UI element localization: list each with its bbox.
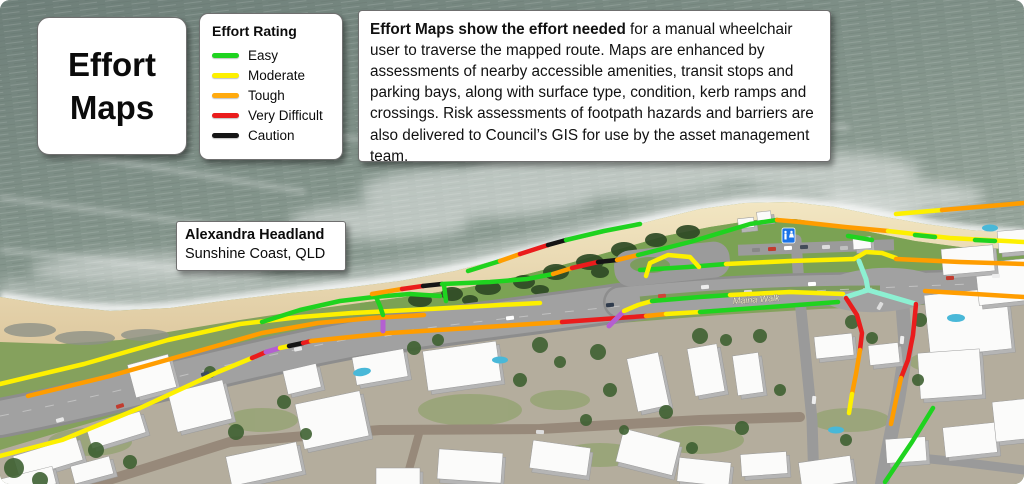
- legend-item-tough: Tough: [210, 85, 332, 105]
- route-segment-moderate: [666, 312, 700, 314]
- title-line-1: Effort: [68, 48, 156, 81]
- legend-rows: EasyModerateToughVery DifficultCaution: [210, 45, 332, 145]
- legend-label-tough: Tough: [248, 88, 285, 103]
- legend-swatch-tough: [212, 93, 239, 98]
- route-segment-easy: [975, 240, 995, 241]
- route-segment-very_difficult: [402, 286, 423, 289]
- legend-item-caution: Caution: [210, 125, 332, 145]
- location-region: Sunshine Coast, QLD: [185, 245, 335, 264]
- description-text: Effort Maps show the effort needed for a…: [370, 19, 819, 167]
- title-line-2: Maps: [70, 91, 154, 124]
- legend-card: Effort Rating EasyModerateToughVery Diff…: [199, 13, 343, 160]
- route-segment-caution: [423, 284, 442, 286]
- route-segment-easy: [444, 285, 446, 301]
- route-segment-caution: [598, 260, 617, 262]
- legend-label-easy: Easy: [248, 48, 278, 63]
- legend-label-moderate: Moderate: [248, 68, 305, 83]
- restroom-icon: [782, 228, 795, 243]
- route-segment-moderate: [849, 394, 852, 413]
- location-label-card: Alexandra Headland Sunshine Coast, QLD: [176, 221, 346, 271]
- legend-label-very-difficult: Very Difficult: [248, 108, 323, 123]
- title-card: Effort Maps: [37, 17, 187, 155]
- legend-swatch-caution: [212, 133, 239, 138]
- location-name: Alexandra Headland: [185, 226, 335, 245]
- legend-swatch-moderate: [212, 73, 239, 78]
- legend-swatch-easy: [212, 53, 239, 58]
- description-body: for a manual wheelchair user to traverse…: [370, 21, 814, 165]
- legend-item-moderate: Moderate: [210, 65, 332, 85]
- legend-swatch-very-difficult: [212, 113, 239, 118]
- legend-item-very-difficult: Very Difficult: [210, 105, 332, 125]
- route-segment-easy: [915, 235, 935, 237]
- legend-item-easy: Easy: [210, 45, 332, 65]
- description-lead: Effort Maps show the effort needed: [370, 21, 626, 38]
- description-card: Effort Maps show the effort needed for a…: [358, 10, 831, 162]
- legend-label-caution: Caution: [248, 128, 295, 143]
- effort-maps-infographic: Maina Walk Effort Maps Effort Rating Eas…: [0, 0, 1024, 484]
- legend-title: Effort Rating: [212, 23, 332, 39]
- route-segment-tough: [646, 314, 666, 316]
